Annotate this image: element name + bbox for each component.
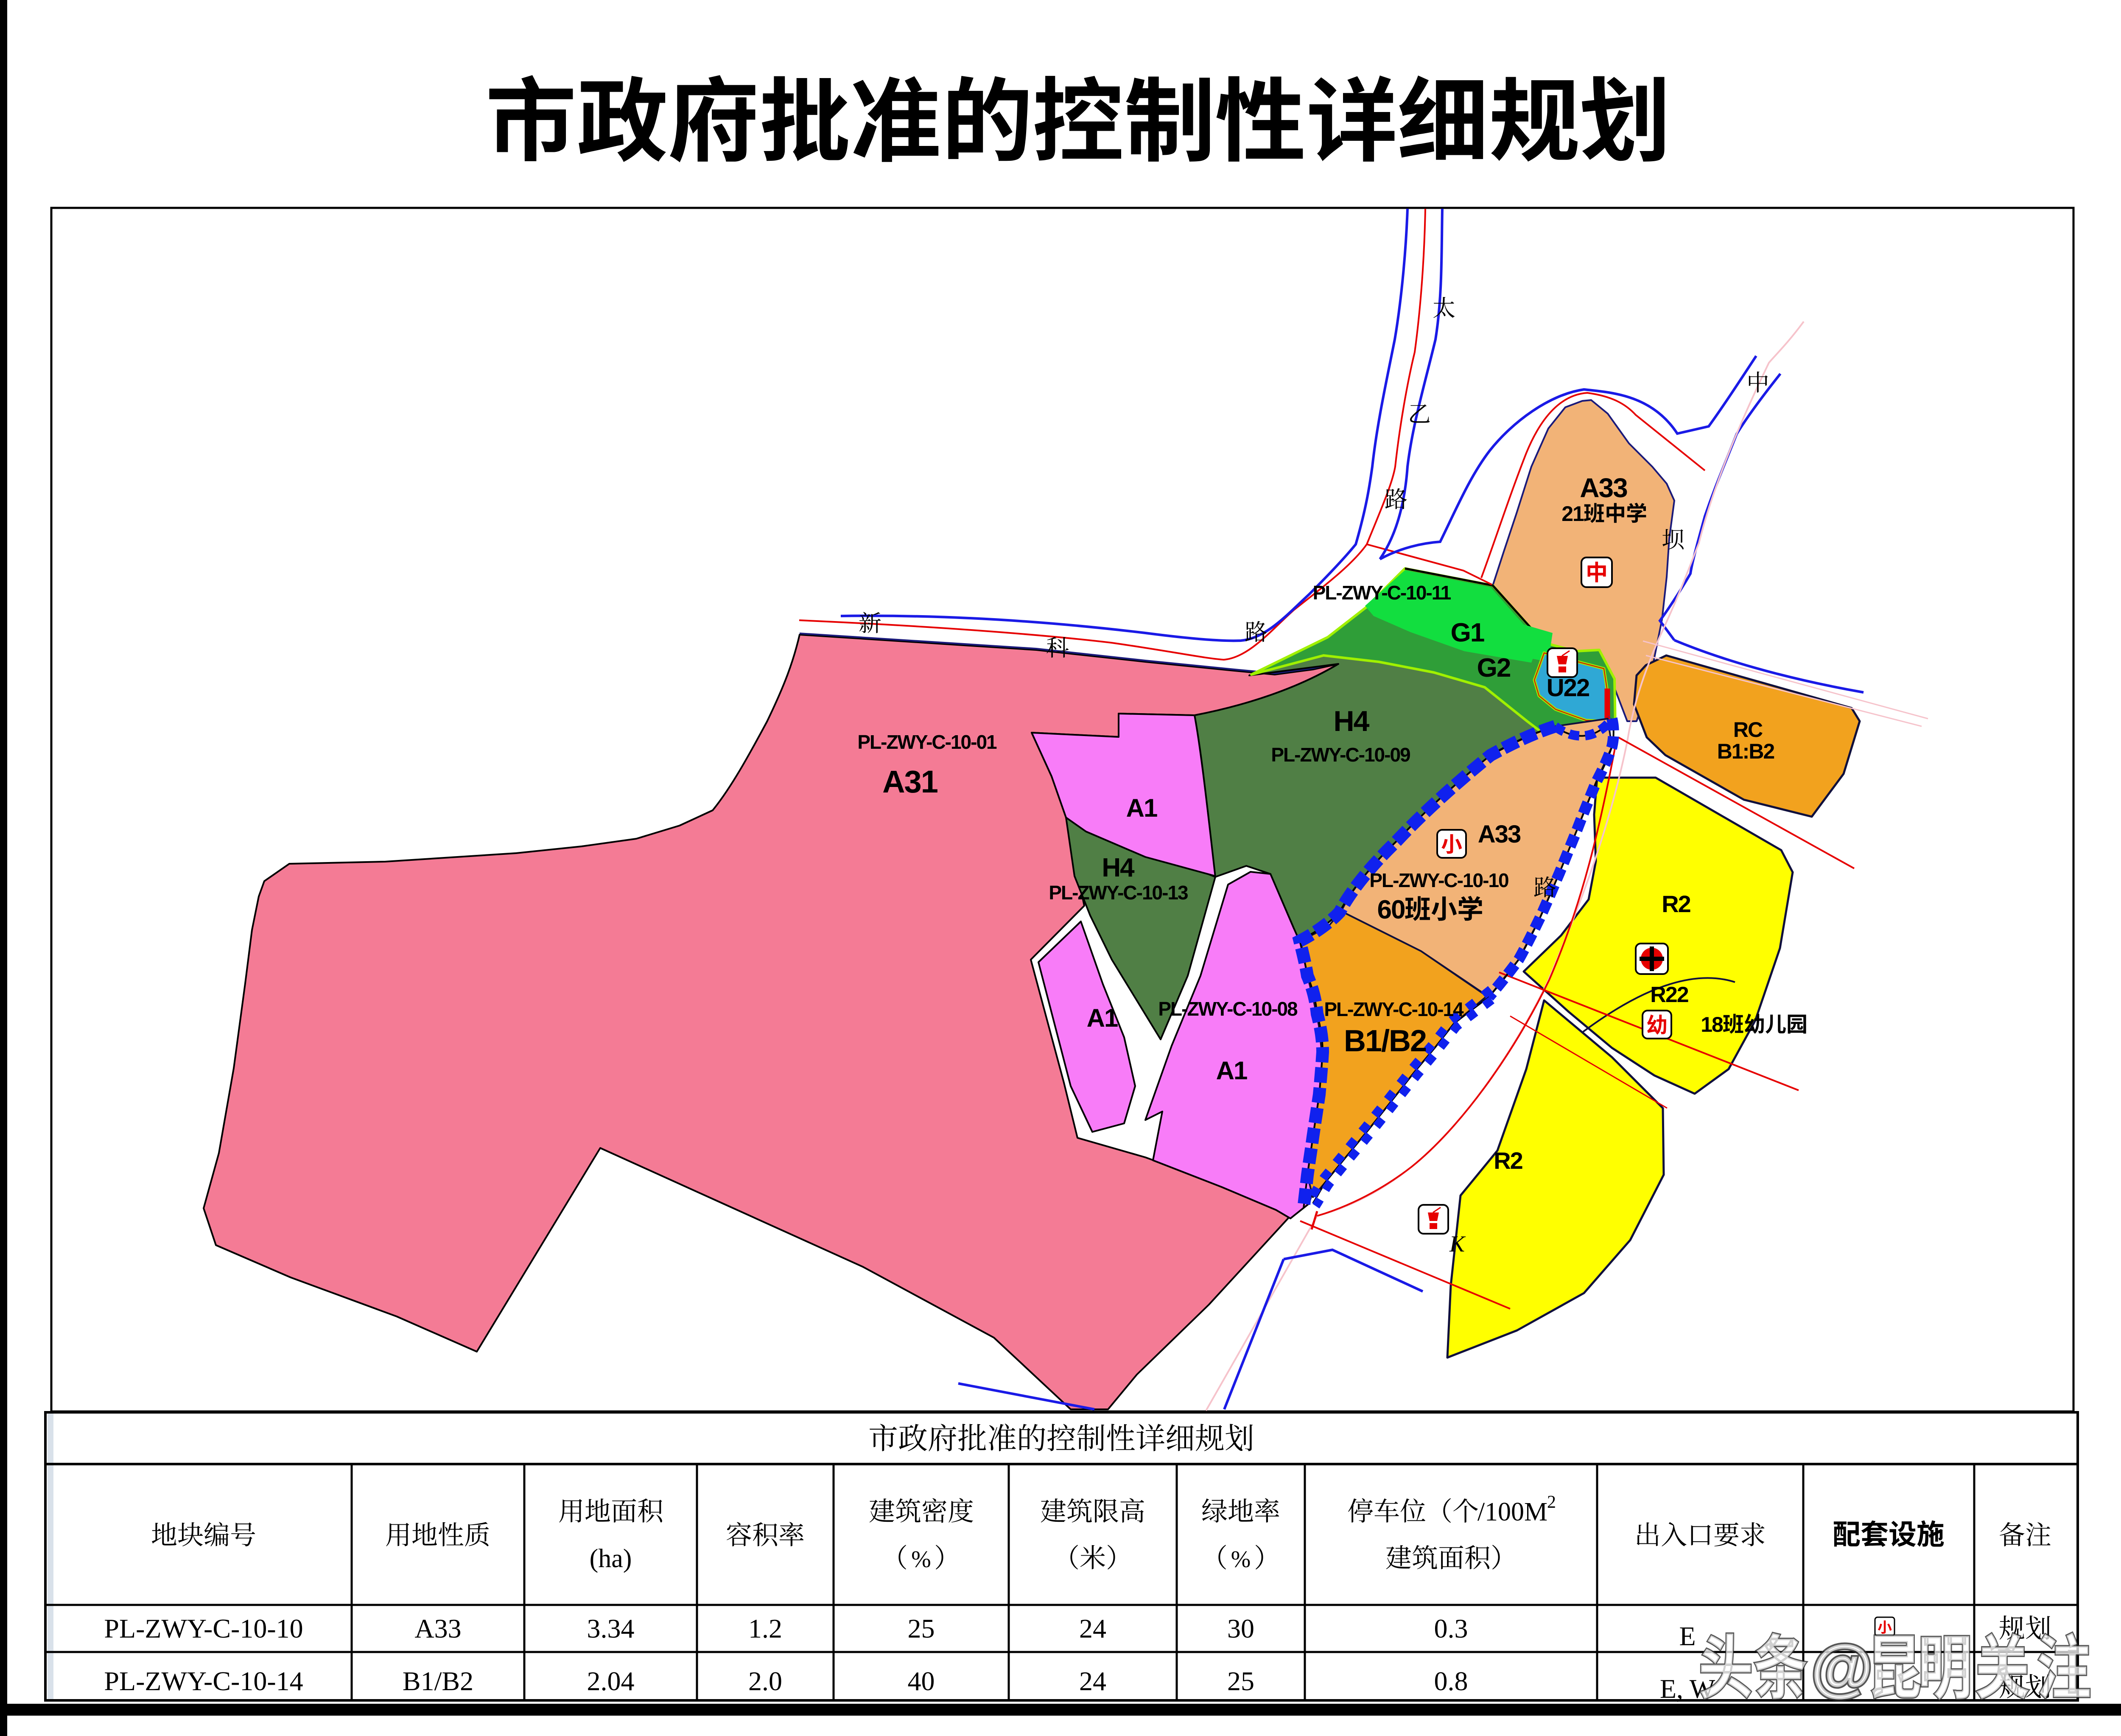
svg-text:A33: A33 — [1478, 820, 1521, 848]
svg-text:RC: RC — [1733, 718, 1763, 742]
svg-text:%: % — [911, 1546, 931, 1573]
svg-text:R2: R2 — [1662, 890, 1690, 917]
svg-text:3.34: 3.34 — [587, 1613, 635, 1644]
svg-text:0.3: 0.3 — [1434, 1613, 1468, 1644]
svg-text:40: 40 — [908, 1666, 935, 1696]
svg-text:(ha): (ha) — [590, 1544, 632, 1573]
svg-text:25: 25 — [1227, 1666, 1254, 1696]
svg-text:A1: A1 — [1126, 794, 1157, 822]
svg-text:A33: A33 — [1580, 473, 1627, 503]
svg-text:PL-ZWY-C-10-11: PL-ZWY-C-10-11 — [1313, 582, 1451, 604]
svg-text:A31: A31 — [882, 764, 938, 799]
svg-text:PL-ZWY-C-10-13: PL-ZWY-C-10-13 — [1049, 882, 1188, 904]
svg-text:1.2: 1.2 — [748, 1613, 782, 1644]
svg-text:A1: A1 — [1087, 1004, 1118, 1032]
svg-text:24: 24 — [1079, 1613, 1106, 1644]
svg-text:0.8: 0.8 — [1434, 1666, 1468, 1696]
svg-text:B1/B2: B1/B2 — [1344, 1024, 1426, 1058]
svg-text:G2: G2 — [1477, 653, 1511, 683]
svg-text:%: % — [1231, 1546, 1251, 1573]
svg-text:R2: R2 — [1494, 1147, 1522, 1174]
svg-text:30: 30 — [1227, 1613, 1254, 1644]
svg-text:B1/B2: B1/B2 — [403, 1666, 473, 1696]
svg-text:B1:B2: B1:B2 — [1717, 739, 1774, 763]
svg-text:H4: H4 — [1334, 705, 1370, 737]
svg-text:PL-ZWY-C-10-08: PL-ZWY-C-10-08 — [1158, 998, 1298, 1020]
svg-text:PL-ZWY-C-10-14: PL-ZWY-C-10-14 — [1324, 998, 1464, 1020]
svg-text:/100M: /100M — [1477, 1498, 1547, 1526]
svg-text:H4: H4 — [1102, 853, 1135, 882]
svg-text:21: 21 — [1561, 502, 1584, 526]
svg-text:U22: U22 — [1547, 674, 1589, 702]
svg-text:PL-ZWY-C-10-14: PL-ZWY-C-10-14 — [104, 1666, 303, 1696]
svg-text:PL-ZWY-C-10-01: PL-ZWY-C-10-01 — [857, 731, 997, 753]
svg-text:PL-ZWY-C-10-09: PL-ZWY-C-10-09 — [1271, 744, 1410, 766]
svg-text:2: 2 — [1547, 1492, 1556, 1512]
svg-text:2.0: 2.0 — [748, 1666, 782, 1696]
svg-text:PL-ZWY-C-10-10: PL-ZWY-C-10-10 — [1369, 869, 1508, 891]
svg-text:PL-ZWY-C-10-10: PL-ZWY-C-10-10 — [104, 1613, 303, 1644]
svg-text:24: 24 — [1079, 1666, 1106, 1696]
svg-text:E: E — [1679, 1621, 1696, 1651]
svg-text:A1: A1 — [1216, 1056, 1247, 1085]
svg-text:25: 25 — [908, 1613, 935, 1644]
svg-text:@: @ — [1811, 1632, 1873, 1703]
svg-text:18: 18 — [1701, 1013, 1723, 1036]
svg-text:R22: R22 — [1650, 983, 1688, 1007]
svg-text:2.04: 2.04 — [587, 1666, 635, 1696]
svg-text:K: K — [1449, 1231, 1466, 1257]
svg-text:A33: A33 — [414, 1613, 461, 1644]
svg-text:60: 60 — [1377, 895, 1405, 924]
svg-text:G1: G1 — [1451, 618, 1484, 647]
